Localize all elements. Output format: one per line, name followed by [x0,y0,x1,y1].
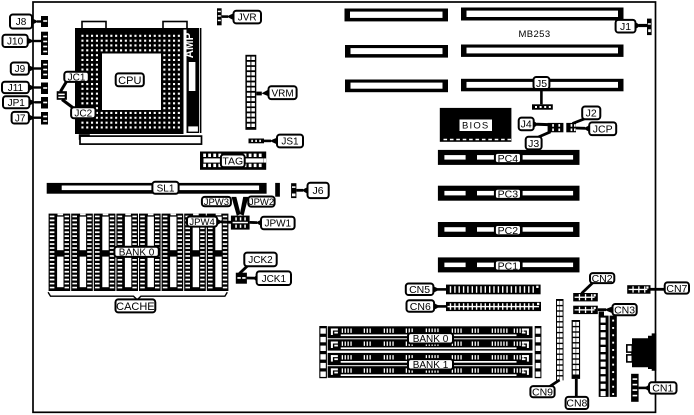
svg-text:J5: J5 [536,78,547,90]
svg-text:J4: J4 [521,119,532,131]
svg-text:BIOS: BIOS [462,121,490,132]
svg-text:JP1: JP1 [8,98,26,109]
svg-text:JPW1: JPW1 [264,219,291,230]
svg-text:JPW4: JPW4 [189,217,214,228]
svg-text:CN7: CN7 [666,283,687,295]
svg-text:CN6: CN6 [410,301,431,313]
svg-text:PC1: PC1 [498,260,519,272]
svg-text:CACHE: CACHE [116,301,155,313]
svg-text:JC2: JC2 [74,108,92,119]
svg-text:CN2: CN2 [592,273,613,285]
svg-text:JCK2: JCK2 [248,255,273,266]
svg-text:J1: J1 [620,21,631,33]
svg-text:VRM: VRM [271,88,293,99]
svg-text:J7: J7 [15,113,26,124]
svg-text:BANK 1: BANK 1 [413,360,449,371]
svg-text:BANK 0: BANK 0 [119,247,155,258]
svg-text:JCK1: JCK1 [262,274,287,285]
svg-text:J8: J8 [16,17,27,28]
svg-text:CN5: CN5 [409,284,430,296]
svg-text:J11: J11 [8,83,24,94]
svg-text:CN3: CN3 [614,304,635,316]
svg-text:CPU: CPU [118,75,141,87]
svg-text:JPW2: JPW2 [249,197,274,208]
svg-text:J2: J2 [586,108,597,120]
svg-text:JCP: JCP [593,124,613,136]
svg-text:J9: J9 [15,64,26,75]
svg-text:PC3: PC3 [498,189,519,201]
svg-text:PC4: PC4 [498,153,519,165]
svg-text:BANK 0: BANK 0 [413,334,449,345]
svg-text:J6: J6 [313,185,324,197]
svg-text:CN9: CN9 [532,387,553,399]
svg-text:JC1: JC1 [68,72,86,83]
svg-text:J3: J3 [528,138,539,150]
svg-text:CN1: CN1 [652,383,673,395]
svg-text:TAG: TAG [222,156,243,168]
svg-text:SL1: SL1 [157,183,175,194]
svg-text:JS1: JS1 [281,137,299,148]
svg-text:PC2: PC2 [498,225,519,237]
svg-text:J10: J10 [7,37,24,48]
svg-text:MB253: MB253 [518,29,550,40]
svg-text:JPW3: JPW3 [204,197,229,208]
svg-text:AMP: AMP [184,32,196,58]
svg-text:CN8: CN8 [566,398,587,410]
svg-text:JVR: JVR [238,13,257,24]
